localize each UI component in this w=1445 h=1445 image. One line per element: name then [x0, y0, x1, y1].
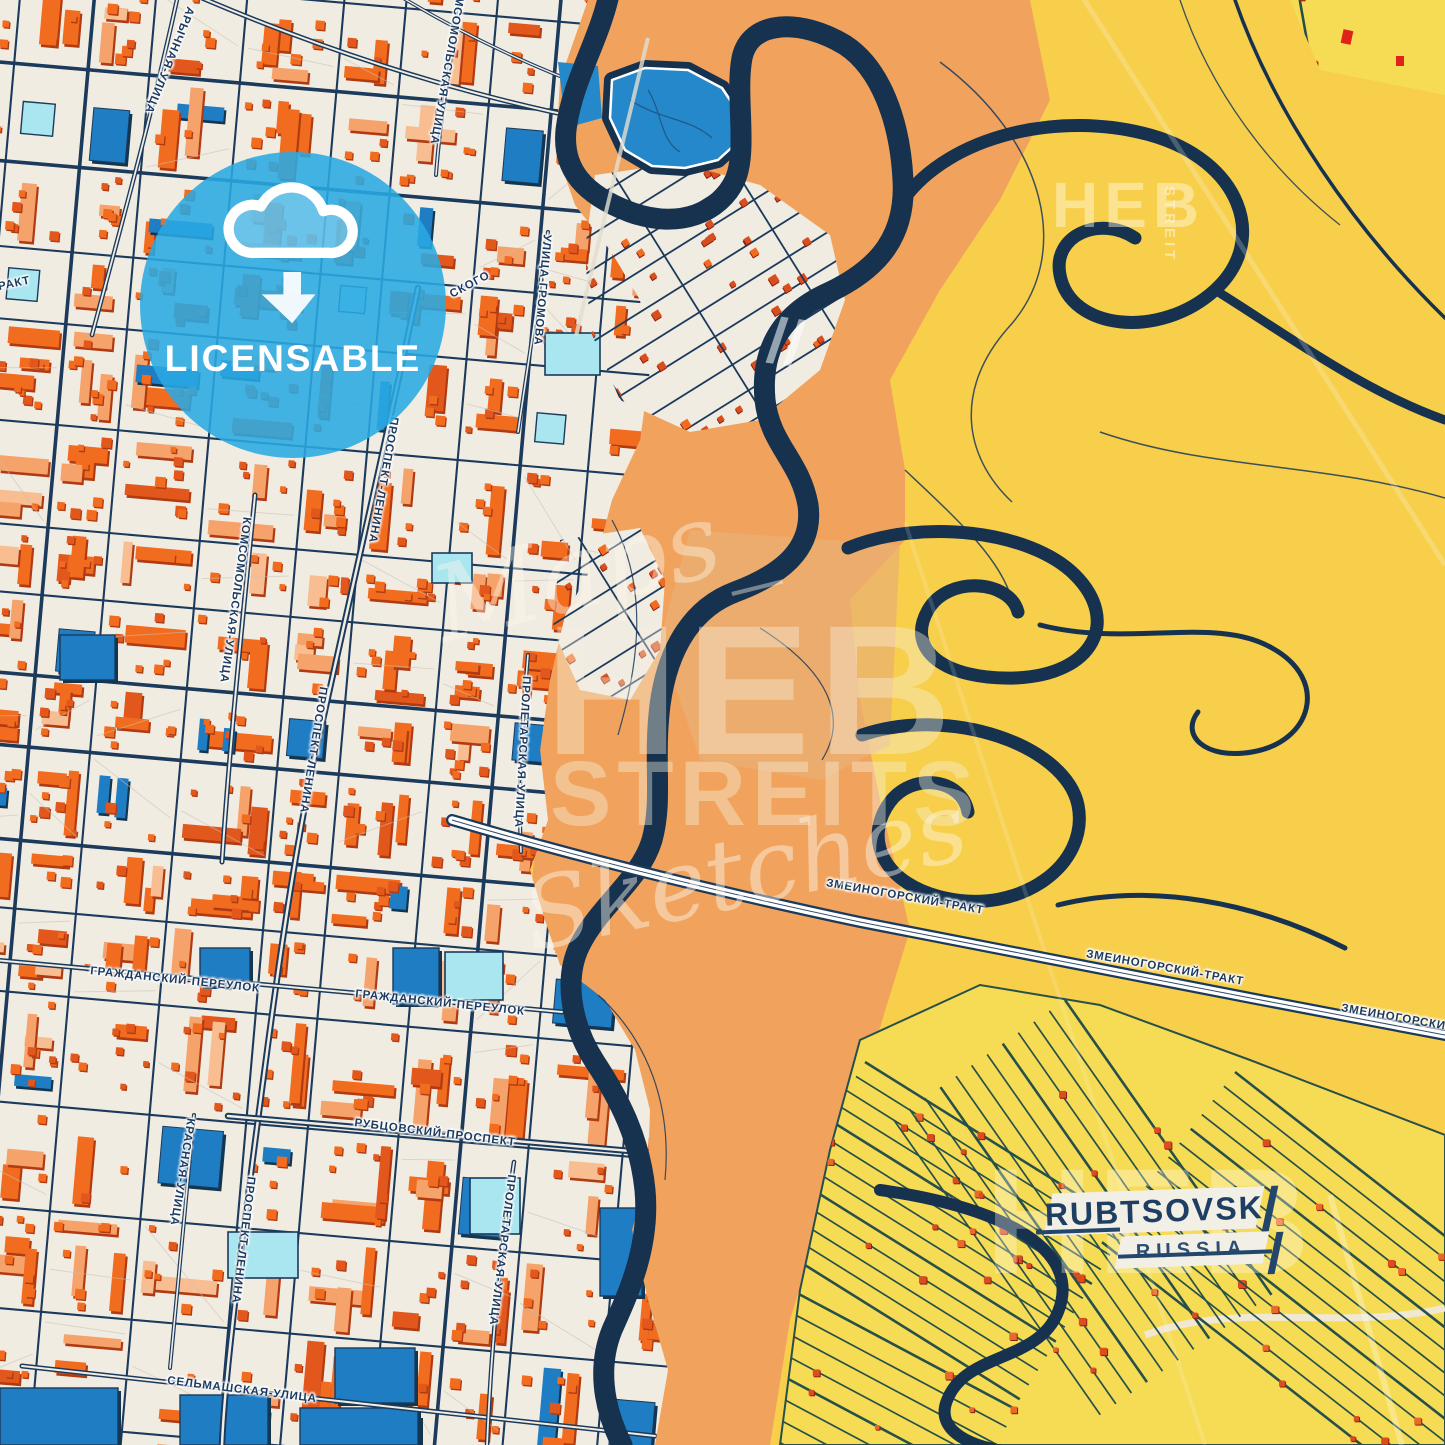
map-poster: АРЫЧНАЯ-УЛИЦАКОМСОМОЛЬСКАЯ-УЛИЦАЗМЕИНОГО…	[0, 0, 1445, 1445]
license-badge[interactable]: LICENSABLE	[140, 152, 446, 458]
badge-label: LICENSABLE	[165, 338, 421, 380]
city-name: RUBTSOVSK	[1044, 1189, 1264, 1234]
cloud-download-icon	[199, 152, 387, 332]
